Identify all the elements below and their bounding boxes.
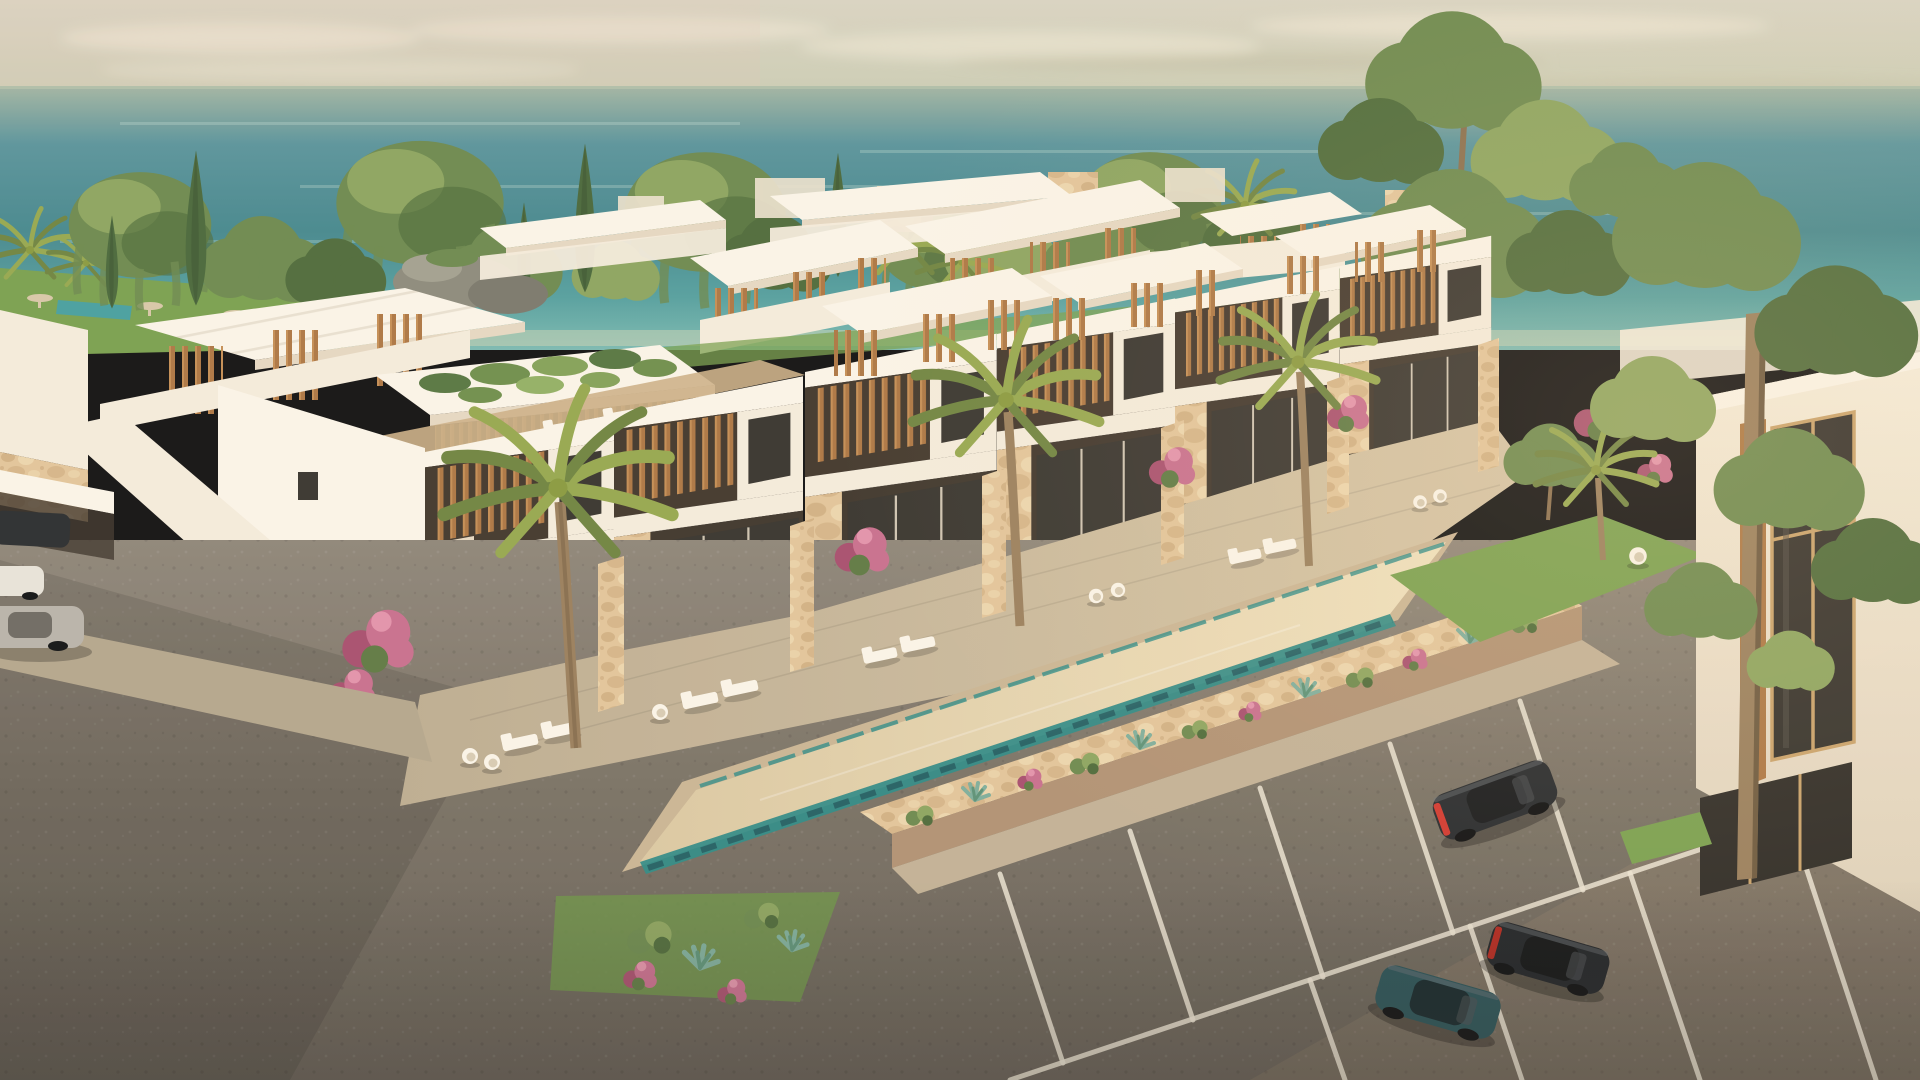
- atmosphere-overlays: [0, 0, 1920, 1080]
- architectural-render: Aerial 3D architectural rendering of a m…: [0, 0, 1920, 1080]
- render-viewport: Aerial 3D architectural rendering of a m…: [0, 0, 1920, 1080]
